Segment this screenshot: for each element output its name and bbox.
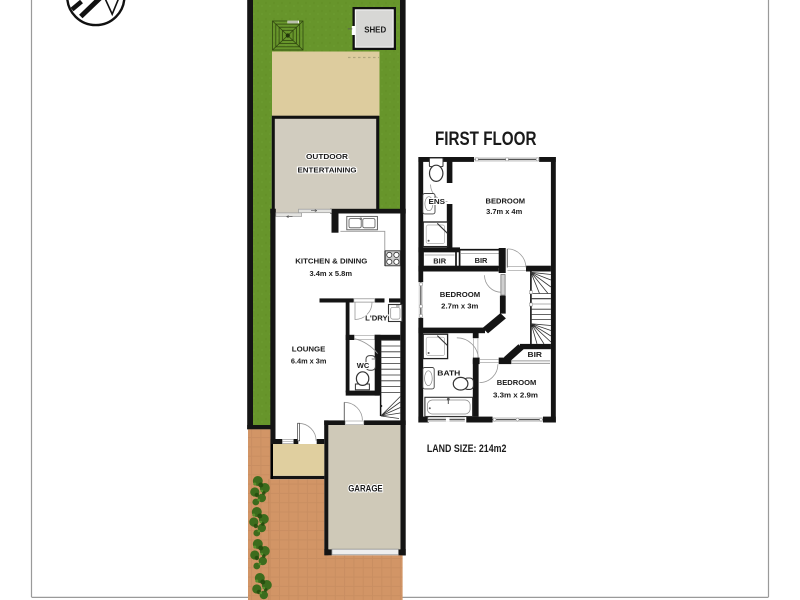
svg-text:WC: WC (357, 363, 370, 370)
svg-text:3.3m x 2.9m: 3.3m x 2.9m (493, 390, 538, 399)
svg-text:BEDROOM: BEDROOM (497, 378, 537, 387)
svg-text:FIRST FLOOR: FIRST FLOOR (435, 128, 537, 150)
svg-text:LOUNGE: LOUNGE (292, 345, 326, 354)
svg-text:LAND SIZE: 214m2: LAND SIZE: 214m2 (427, 443, 507, 455)
svg-text:BATH: BATH (437, 369, 460, 378)
svg-text:2.7m x 3m: 2.7m x 3m (441, 301, 478, 310)
svg-text:SHED: SHED (364, 26, 386, 35)
svg-text:BIR: BIR (475, 256, 489, 265)
svg-text:KITCHEN & DINING: KITCHEN & DINING (295, 257, 367, 266)
svg-text:3.7m x 4m: 3.7m x 4m (486, 207, 522, 216)
svg-text:OUTDOOR: OUTDOOR (306, 154, 348, 161)
svg-text:ENTERTAINING: ENTERTAINING (298, 168, 358, 175)
svg-text:BIR: BIR (528, 350, 543, 359)
svg-text:BEDROOM: BEDROOM (486, 196, 526, 205)
svg-text:BIR: BIR (433, 257, 447, 266)
svg-text:L'DRY: L'DRY (365, 316, 388, 323)
svg-text:BEDROOM: BEDROOM (440, 290, 480, 299)
svg-text:3.4m x 5.8m: 3.4m x 5.8m (310, 269, 353, 278)
svg-text:6.4m x 3m: 6.4m x 3m (291, 356, 327, 365)
svg-text:GARAGE: GARAGE (348, 484, 383, 494)
svg-text:ENS: ENS (429, 199, 446, 206)
